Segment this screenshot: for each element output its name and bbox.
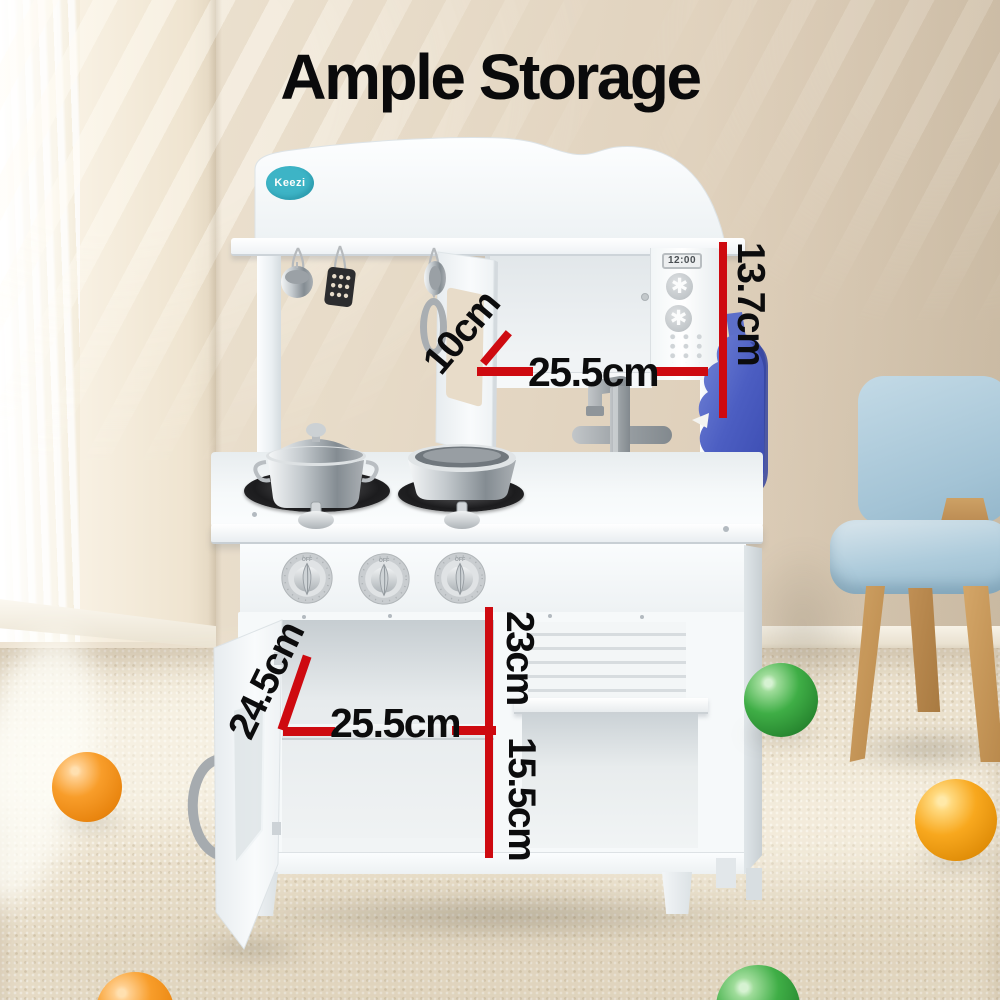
toy-pan — [404, 442, 520, 506]
dim-line-microwave-height — [719, 242, 727, 418]
dim-label-top-cabinet-width: 25.5cm — [528, 349, 658, 396]
countertop-front-edge — [211, 524, 763, 544]
microwave-knob-bottom: ✱ — [665, 305, 692, 332]
screw-dot — [723, 526, 729, 532]
screw-dot — [388, 614, 392, 618]
kitchen-leg-side — [746, 868, 762, 900]
dial-label: OFF — [379, 558, 390, 564]
toy-beater — [419, 250, 451, 302]
backsplash-panel — [243, 134, 739, 250]
toy-ball-green — [744, 663, 818, 737]
toy-spatula — [320, 250, 360, 310]
toy-ball-yellow — [915, 779, 997, 861]
dim-line-top-width-right — [652, 367, 708, 376]
product-photo-scene: Keezi 12:00 ✱ ✱ — [0, 0, 1000, 1000]
toy-ball-orange — [52, 752, 122, 822]
kids-chair-seat — [830, 520, 1000, 594]
screw-dot — [548, 614, 552, 618]
toy-ladle — [277, 260, 317, 302]
dim-line-bottom-shelf-height — [485, 734, 493, 858]
stove-dial-right: OFF — [431, 549, 489, 607]
headline: Ample Storage — [0, 40, 980, 114]
door-latch-dot — [641, 293, 649, 301]
dim-line-middle-shelf-height — [485, 607, 493, 735]
burner-ignitor — [442, 500, 482, 530]
dim-line-lower-width-left — [283, 727, 335, 736]
kitchen-leg-back — [716, 858, 736, 888]
dim-label-microwave-height: 13.7cm — [728, 242, 772, 392]
toy-pot-with-lid — [246, 414, 386, 514]
dim-label-bottom-shelf-height: 15.5cm — [499, 737, 543, 865]
kitchen-leg-right — [662, 872, 692, 914]
stove-dial-left: OFF — [278, 549, 336, 607]
brand-logo: Keezi — [266, 166, 314, 200]
stove-dial-middle: OFF — [355, 550, 413, 608]
dial-label: OFF — [302, 557, 313, 563]
cabinet-floor — [282, 838, 494, 852]
microwave-clock-display: 12:00 — [662, 253, 702, 269]
plate-rack-slats — [528, 622, 686, 698]
plate-rack-shelf-edge — [514, 698, 708, 714]
dim-line-top-width-left — [477, 367, 533, 376]
burner-ignitor — [296, 500, 336, 530]
screw-dot — [640, 615, 644, 619]
microwave-knob-top: ✱ — [666, 273, 693, 300]
dial-label: OFF — [455, 557, 466, 563]
cabinet-opening-right — [522, 714, 698, 848]
dim-label-lower-cabinet-width: 25.5cm — [330, 700, 456, 747]
dim-label-middle-shelf-height: 23cm — [497, 611, 541, 721]
